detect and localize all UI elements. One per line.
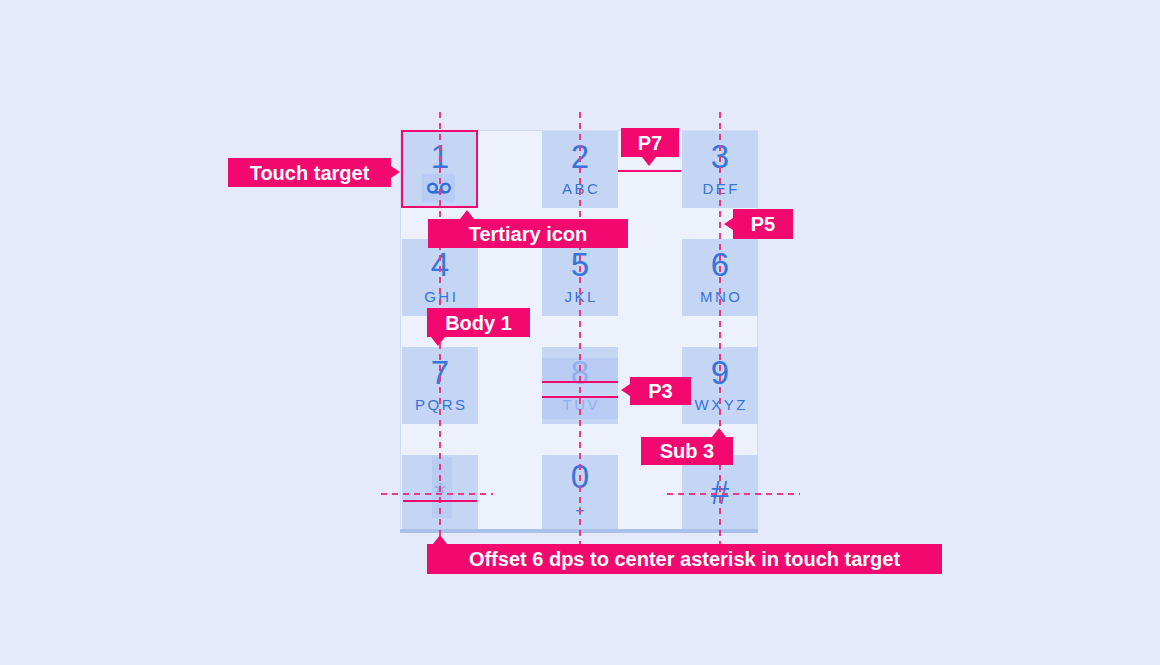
keyline-column-2 (579, 112, 581, 544)
touch-target-label: Touch target (228, 158, 391, 187)
tertiary-icon-label: Tertiary icon (428, 219, 628, 248)
p3-label: P3 (630, 377, 691, 405)
touch-target-outline (401, 130, 478, 208)
p7-measure-line (618, 170, 681, 172)
sub3-arrow-icon (712, 428, 726, 437)
p5-label: P5 (733, 209, 793, 239)
p3-arrow-icon (621, 384, 630, 396)
p7-label: P7 (621, 128, 679, 157)
keyline-column-3 (719, 112, 721, 544)
touch-target-arrow-icon (391, 166, 400, 178)
offset-arrow-icon (433, 535, 447, 544)
tertiary-icon-arrow-icon (460, 210, 474, 219)
row-center-line-star (381, 493, 493, 495)
p7-arrow-icon (642, 157, 656, 166)
asterisk-baseline (403, 500, 477, 502)
sub3-label: Sub 3 (641, 437, 733, 465)
body1-label: Body 1 (427, 308, 530, 337)
p3-measure-line-bottom (542, 396, 618, 398)
p5-arrow-icon (724, 218, 733, 230)
body1-arrow-icon (431, 337, 445, 346)
row-center-line-hash (667, 493, 800, 495)
p3-measure-line-top (542, 381, 618, 383)
spec-canvas: 1 2 ABC 3 DEF 4 GHI 5 JKL 6 MNO 7 PQRS (0, 0, 1160, 665)
offset-label: Offset 6 dps to center asterisk in touch… (427, 544, 942, 574)
